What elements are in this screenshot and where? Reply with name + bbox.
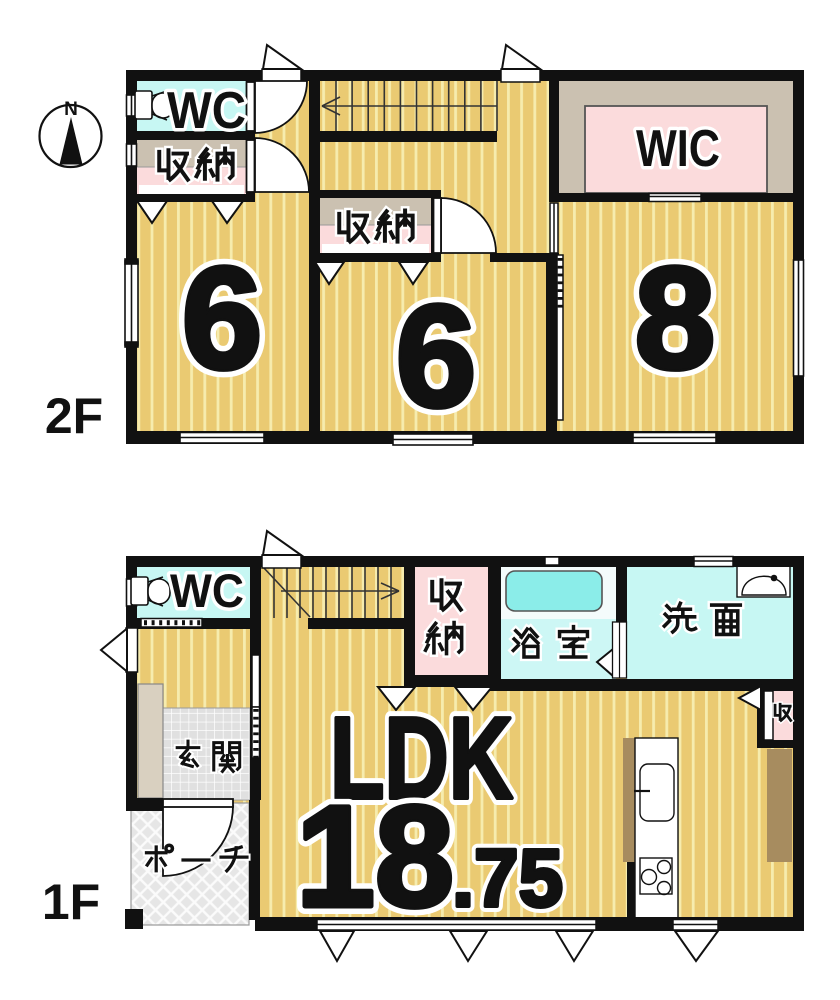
- svg-text:N: N: [64, 99, 78, 120]
- svg-text:6: 6: [396, 275, 477, 437]
- svg-text:.75: .75: [452, 833, 563, 924]
- svg-text:WC: WC: [170, 564, 244, 617]
- svg-text:WIC: WIC: [636, 120, 720, 178]
- svg-text:18: 18: [296, 776, 454, 937]
- svg-text:WC: WC: [167, 82, 246, 140]
- svg-text:2F: 2F: [45, 388, 103, 444]
- svg-text:1F: 1F: [42, 874, 100, 930]
- svg-text:6: 6: [182, 237, 263, 399]
- svg-text:8: 8: [635, 237, 716, 399]
